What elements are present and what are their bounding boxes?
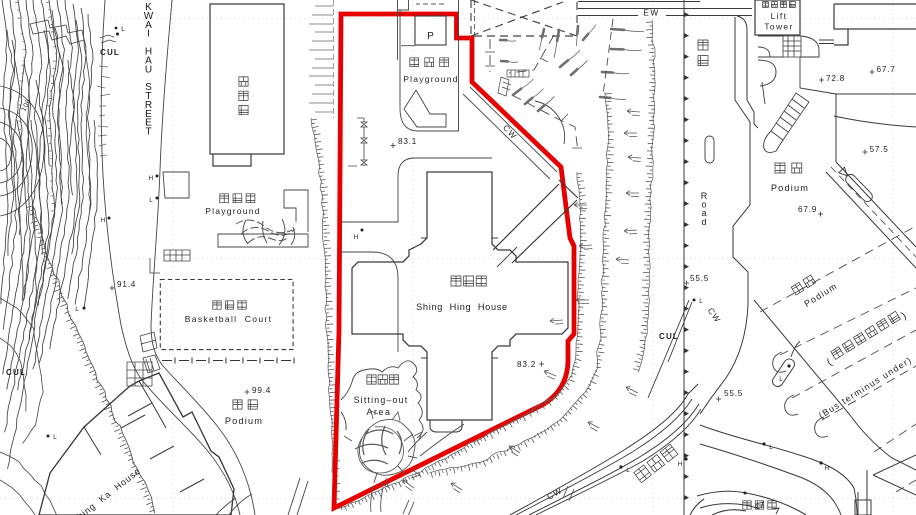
svg-text:L: L bbox=[626, 467, 630, 474]
svg-text:Basketball Court: Basketball Court bbox=[185, 314, 273, 324]
svg-text:H: H bbox=[678, 461, 683, 468]
svg-text:Playground: Playground bbox=[205, 206, 260, 216]
svg-text:Podium: Podium bbox=[771, 183, 809, 193]
svg-text:H: H bbox=[354, 234, 359, 241]
svg-text:L: L bbox=[53, 434, 57, 441]
svg-text:67.9: 67.9 bbox=[798, 205, 817, 214]
svg-text:83.1: 83.1 bbox=[398, 137, 417, 146]
svg-text:Area: Area bbox=[367, 407, 392, 417]
svg-text:L: L bbox=[769, 444, 773, 451]
svg-text:83.2: 83.2 bbox=[517, 360, 536, 369]
svg-text:91.4: 91.4 bbox=[117, 280, 136, 289]
svg-text:CUL: CUL bbox=[100, 48, 120, 57]
svg-text:I: I bbox=[147, 29, 150, 40]
svg-text:L: L bbox=[149, 197, 153, 204]
svg-text:67.7: 67.7 bbox=[877, 65, 896, 74]
svg-text:U: U bbox=[145, 64, 152, 75]
svg-text:55.5: 55.5 bbox=[724, 389, 743, 398]
svg-text:Podium: Podium bbox=[225, 416, 263, 426]
svg-text:Tower: Tower bbox=[764, 22, 793, 32]
svg-text:Playground: Playground bbox=[403, 74, 458, 84]
svg-text:72.8: 72.8 bbox=[826, 74, 845, 83]
svg-text:Lift: Lift bbox=[771, 11, 788, 21]
svg-text:99.4: 99.4 bbox=[252, 386, 271, 395]
svg-text:T: T bbox=[145, 127, 151, 138]
svg-text:CUL: CUL bbox=[659, 332, 679, 341]
svg-text:L: L bbox=[779, 376, 783, 383]
svg-text:P: P bbox=[427, 31, 434, 42]
svg-text:L: L bbox=[75, 306, 79, 313]
svg-text:55.5: 55.5 bbox=[690, 274, 709, 283]
svg-text:EW: EW bbox=[643, 8, 659, 18]
svg-text:H: H bbox=[149, 175, 154, 182]
svg-text:d: d bbox=[701, 217, 706, 227]
svg-text:Shing Hing House: Shing Hing House bbox=[416, 302, 508, 312]
svg-text:CUL: CUL bbox=[6, 368, 26, 377]
svg-text:57.5: 57.5 bbox=[870, 145, 889, 154]
svg-text:H: H bbox=[101, 217, 106, 224]
svg-text:H: H bbox=[825, 465, 830, 472]
svg-text:L: L bbox=[699, 298, 703, 305]
svg-text:Sitting–out: Sitting–out bbox=[354, 395, 409, 405]
svg-text:L: L bbox=[121, 26, 125, 33]
